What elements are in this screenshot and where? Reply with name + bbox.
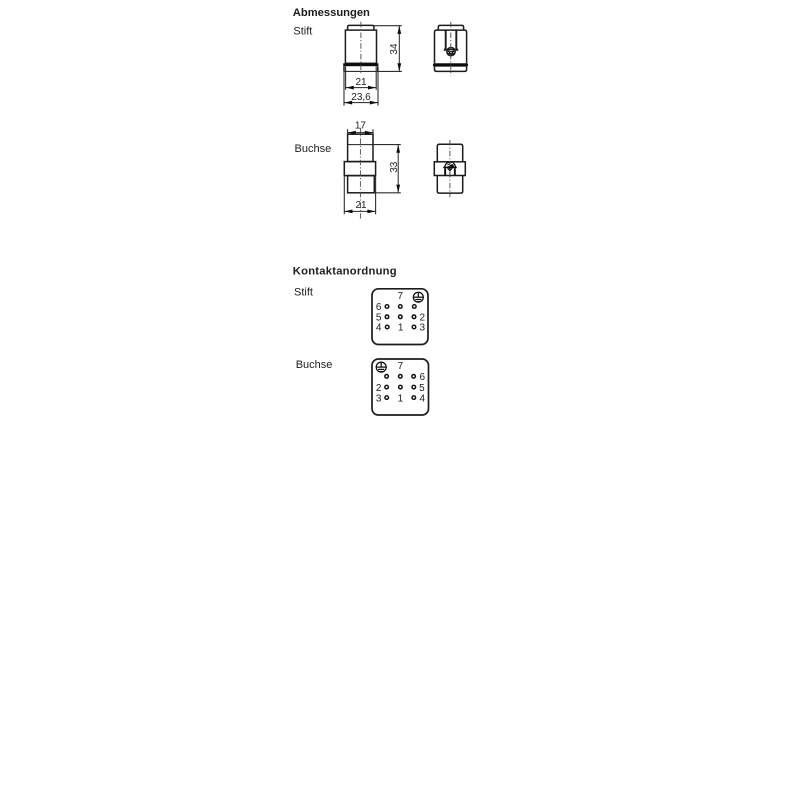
svg-text:1: 1 (398, 323, 404, 334)
svg-text:7: 7 (398, 361, 404, 372)
svg-text:21: 21 (355, 200, 367, 211)
svg-text:3: 3 (376, 393, 382, 404)
svg-text:Buchse: Buchse (295, 143, 332, 155)
svg-text:21: 21 (355, 77, 367, 88)
svg-text:Stift: Stift (293, 26, 312, 38)
svg-text:34: 34 (389, 43, 400, 55)
svg-text:Stift: Stift (294, 287, 313, 299)
svg-text:4: 4 (376, 323, 382, 334)
svg-text:17: 17 (355, 120, 367, 131)
svg-text:4: 4 (420, 393, 426, 404)
svg-text:33: 33 (389, 161, 400, 173)
svg-text:1: 1 (398, 393, 404, 404)
svg-text:Kontaktanordnung: Kontaktanordnung (293, 265, 397, 277)
svg-text:2: 2 (376, 383, 382, 394)
svg-text:3: 3 (420, 323, 426, 334)
svg-text:Abmessungen: Abmessungen (293, 7, 370, 19)
svg-text:5: 5 (419, 383, 425, 394)
svg-text:Buchse: Buchse (296, 359, 333, 371)
svg-text:7: 7 (398, 291, 404, 302)
svg-text:23,6: 23,6 (351, 92, 371, 103)
svg-text:6: 6 (420, 372, 426, 383)
